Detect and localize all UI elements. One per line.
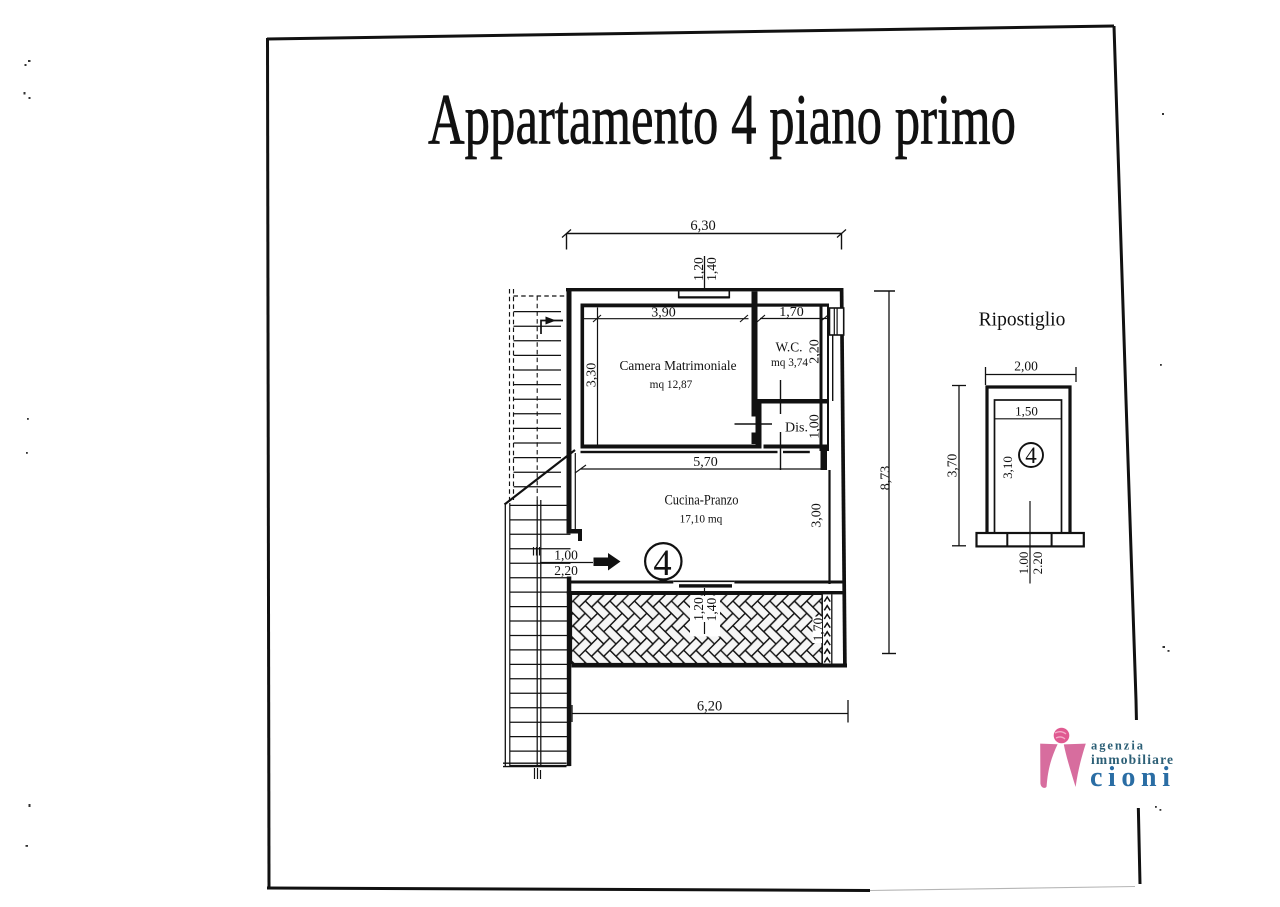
svg-text:W.C.: W.C. <box>776 340 803 355</box>
svg-text:Camera Matrimoniale: Camera Matrimoniale <box>620 358 737 373</box>
svg-text:6,20: 6,20 <box>697 699 722 715</box>
svg-text:1,70: 1,70 <box>779 305 804 320</box>
svg-text:4: 4 <box>1025 443 1037 468</box>
svg-text:1,70: 1,70 <box>810 617 825 641</box>
svg-text:2,00: 2,00 <box>1014 359 1038 374</box>
svg-text:mq 12,87: mq 12,87 <box>650 379 693 391</box>
svg-text:2,20: 2,20 <box>554 563 578 578</box>
svg-text:6,30: 6,30 <box>690 218 715 234</box>
svg-text:mq 3,74: mq 3,74 <box>771 357 808 369</box>
svg-text:3,90: 3,90 <box>651 306 676 321</box>
svg-text:3,00: 3,00 <box>810 503 825 528</box>
svg-text:4: 4 <box>653 542 671 583</box>
svg-text:Appartamento 4 piano primo: Appartamento 4 piano primo <box>428 80 1016 160</box>
svg-text:8,73: 8,73 <box>878 466 893 491</box>
svg-text:1,00: 1,00 <box>808 414 823 439</box>
svg-text:3,10: 3,10 <box>1000 456 1015 479</box>
svg-text:Ripostiglio: Ripostiglio <box>979 310 1066 331</box>
svg-text:3,70: 3,70 <box>944 453 959 477</box>
svg-text:2.20: 2.20 <box>1030 552 1045 575</box>
svg-text:Cucina-Pranzo: Cucina-Pranzo <box>665 493 739 509</box>
svg-text:1,40: 1,40 <box>704 257 719 281</box>
svg-text:2,20: 2,20 <box>808 339 823 364</box>
svg-text:1,40: 1,40 <box>704 597 719 621</box>
svg-text:5,70: 5,70 <box>693 455 718 470</box>
svg-text:1,50: 1,50 <box>1015 404 1038 419</box>
svg-text:1.00: 1.00 <box>1016 552 1031 575</box>
svg-text:agenzia: agenzia <box>1091 739 1144 753</box>
svg-text:3,30: 3,30 <box>585 363 600 388</box>
svg-text:17,10 mq: 17,10 mq <box>680 514 723 526</box>
svg-text:1,00: 1,00 <box>554 548 578 563</box>
svg-text:Dis.: Dis. <box>785 421 808 436</box>
